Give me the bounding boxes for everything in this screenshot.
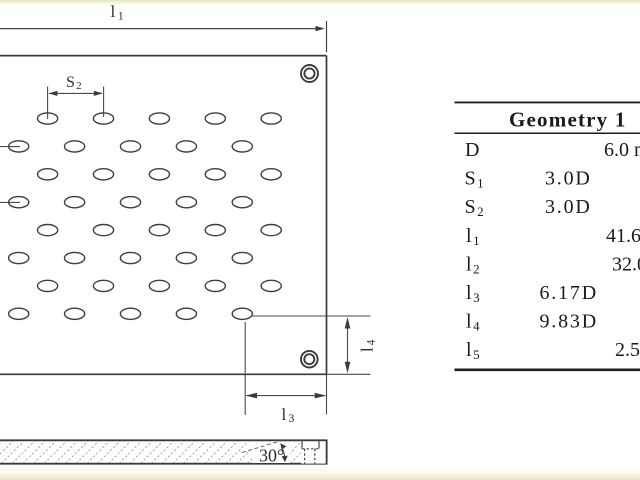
svg-text:S2: S2 bbox=[66, 74, 82, 92]
svg-text:32.0: 32.0 bbox=[612, 253, 640, 275]
svg-text:l1: l1 bbox=[466, 225, 480, 248]
svg-text:D: D bbox=[465, 139, 479, 161]
svg-text:2.5D: 2.5D bbox=[615, 339, 640, 361]
svg-text:Geometry 1: Geometry 1 bbox=[509, 108, 627, 132]
svg-text:S1: S1 bbox=[465, 168, 484, 191]
svg-text:l3: l3 bbox=[282, 405, 295, 425]
svg-text:l4: l4 bbox=[466, 311, 480, 334]
svg-text:6.17D: 6.17D bbox=[540, 282, 598, 304]
svg-text:41.67: 41.67 bbox=[606, 225, 640, 247]
svg-text:6.0 mm: 6.0 mm bbox=[604, 139, 640, 161]
svg-text:l4: l4 bbox=[358, 339, 378, 352]
svg-text:l3: l3 bbox=[466, 282, 480, 305]
svg-text:3.0D: 3.0D bbox=[545, 168, 592, 190]
svg-text:9.83D: 9.83D bbox=[540, 311, 598, 333]
svg-text:l1: l1 bbox=[111, 2, 124, 23]
svg-text:l5: l5 bbox=[466, 339, 480, 362]
svg-text:30°: 30° bbox=[259, 446, 284, 466]
svg-text:3.0D: 3.0D bbox=[545, 196, 592, 218]
svg-text:l2: l2 bbox=[466, 253, 480, 276]
svg-text:S2: S2 bbox=[465, 196, 484, 219]
